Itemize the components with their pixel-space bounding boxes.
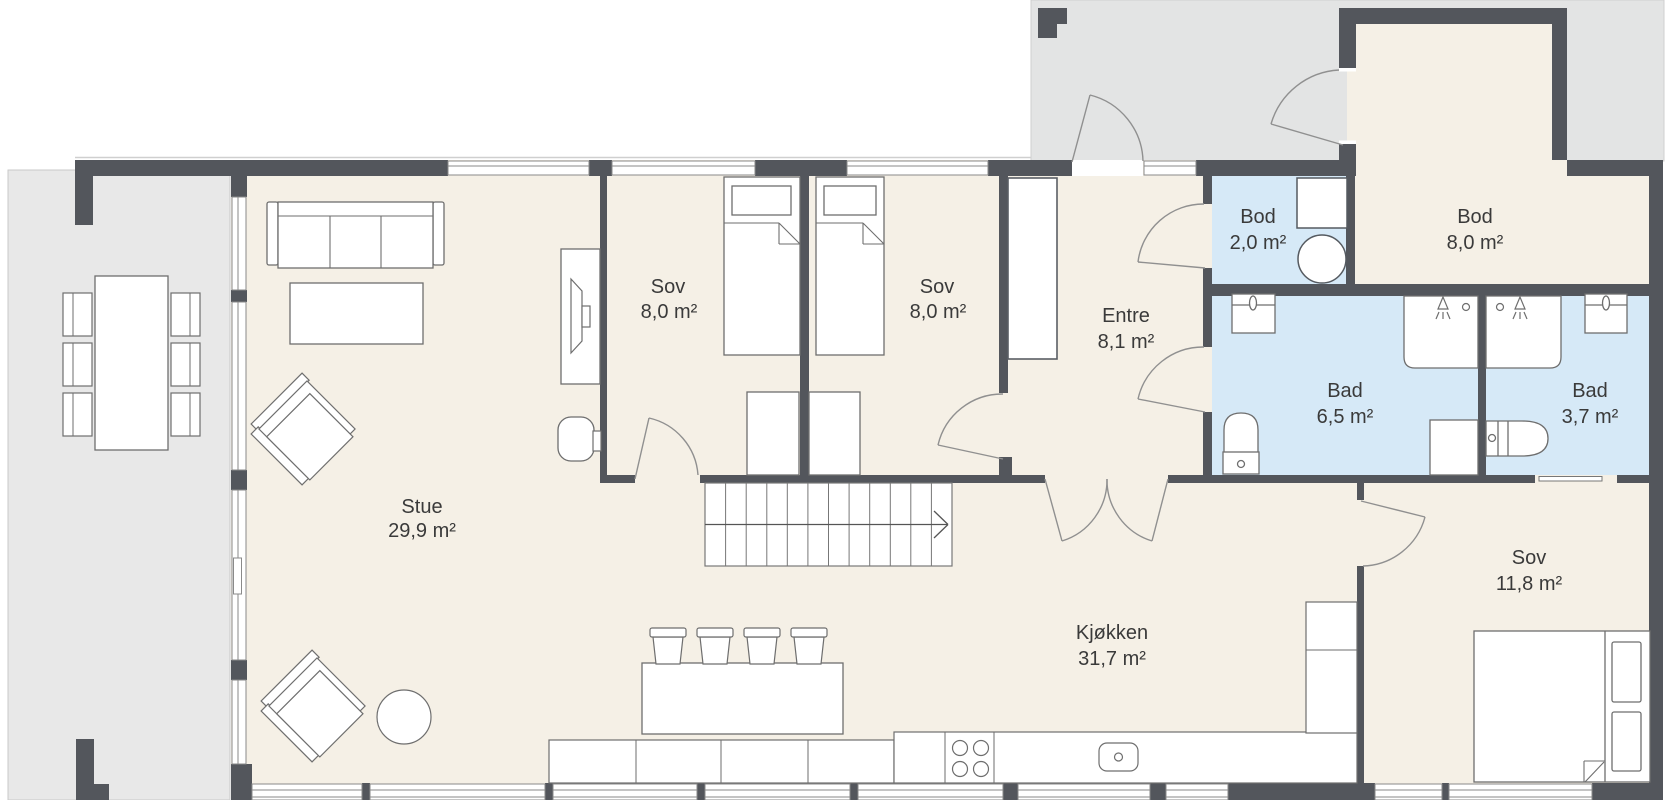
svg-text:Kjøkken: Kjøkken — [1076, 622, 1148, 644]
svg-text:Sov: Sov — [1512, 547, 1546, 569]
svg-text:31,7 m²: 31,7 m² — [1078, 648, 1146, 670]
svg-text:8,0 m²: 8,0 m² — [641, 301, 698, 323]
svg-text:11,8 m²: 11,8 m² — [1496, 573, 1563, 595]
svg-text:Bod: Bod — [1457, 206, 1493, 228]
svg-text:6,5 m²: 6,5 m² — [1317, 406, 1374, 428]
svg-text:Sov: Sov — [920, 276, 954, 298]
svg-text:Bad: Bad — [1327, 380, 1363, 402]
svg-text:Entre: Entre — [1102, 305, 1150, 327]
svg-text:Bad: Bad — [1572, 380, 1608, 402]
svg-text:3,7 m²: 3,7 m² — [1562, 406, 1619, 428]
svg-text:Stue: Stue — [401, 496, 442, 518]
svg-text:Bod: Bod — [1240, 206, 1276, 228]
svg-text:29,9 m²: 29,9 m² — [388, 520, 456, 542]
svg-text:8,1 m²: 8,1 m² — [1098, 331, 1155, 353]
svg-text:Sov: Sov — [651, 276, 685, 298]
svg-text:2,0 m²: 2,0 m² — [1230, 232, 1287, 254]
svg-text:8,0 m²: 8,0 m² — [910, 301, 967, 323]
svg-text:8,0 m²: 8,0 m² — [1447, 232, 1504, 254]
